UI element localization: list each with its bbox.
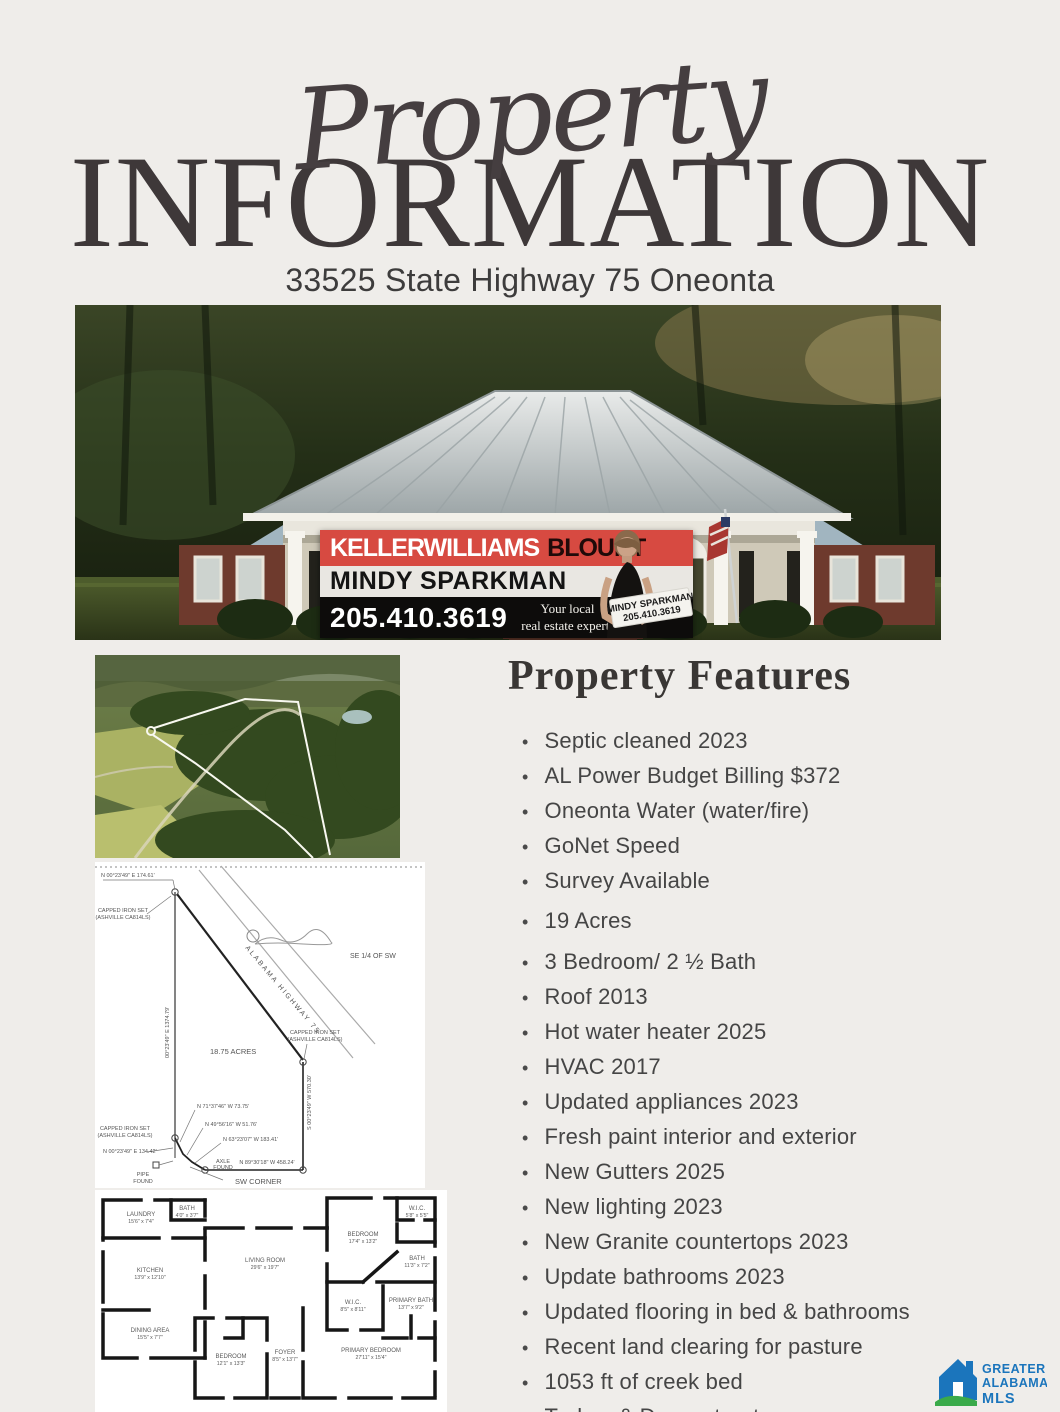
svg-text:(ASHVILLE CA814LS): (ASHVILLE CA814LS) [97, 1133, 152, 1139]
feature-item: Updated appliances 2023 [522, 1089, 968, 1115]
highway-label: ALABAMA HIGHWAY 75 [243, 945, 321, 1036]
feature-item: Updated flooring in bed & bathrooms [522, 1299, 968, 1325]
bearing-sw: N 00°23'49" E 134.42' [103, 1149, 157, 1155]
svg-text:29'6" x 19'7": 29'6" x 19'7" [251, 1265, 280, 1271]
svg-text:27'11" x 15'4": 27'11" x 15'4" [356, 1355, 387, 1361]
feature-item: GoNet Speed [522, 833, 968, 859]
svg-text:PRIMARY BEDROOM: PRIMARY BEDROOM [341, 1348, 401, 1354]
feature-item: 1053 ft of creek bed [522, 1369, 968, 1395]
svg-text:FOYER: FOYER [275, 1350, 296, 1356]
feature-item: HVAC 2017 [522, 1054, 968, 1080]
quarter-label: SE 1/4 OF SW [350, 953, 396, 960]
svg-text:DINING AREA: DINING AREA [131, 1328, 170, 1334]
feature-item: Update bathrooms 2023 [522, 1264, 968, 1290]
svg-text:CAPPED IRON SET: CAPPED IRON SET [290, 1030, 341, 1036]
svg-text:4'0" x 3'7": 4'0" x 3'7" [176, 1213, 199, 1219]
agent-banner: KELLERWILLIAMS BLOUNT MINDY SPARKMAN 205… [320, 530, 693, 638]
svg-text:BEDROOM: BEDROOM [215, 1354, 246, 1360]
svg-text:CAPPED IRON SET: CAPPED IRON SET [100, 1126, 151, 1132]
brand-name: KELLERWILLIAMS [330, 534, 539, 563]
svg-text:13'7" x 9'2": 13'7" x 9'2" [398, 1305, 424, 1311]
svg-text:(ASHVILLE CA814LS): (ASHVILLE CA814LS) [287, 1037, 342, 1043]
svg-text:KITCHEN: KITCHEN [137, 1268, 163, 1274]
svg-text:12'1" x 13'3": 12'1" x 13'3" [217, 1361, 246, 1367]
svg-text:11'3" x 7'2": 11'3" x 7'2" [404, 1263, 429, 1269]
svg-text:(ASHVILLE CA814LS): (ASHVILLE CA814LS) [95, 915, 150, 921]
pond [342, 710, 372, 724]
feature-item: Septic cleaned 2023 [522, 728, 968, 754]
bearing-2: N 49°56'16" W 51.76' [205, 1122, 257, 1128]
mls-logo: GREATER ALABAMA MLS [933, 1350, 1047, 1408]
agent-name: MINDY SPARKMAN [330, 567, 567, 596]
svg-text:17'4" x 13'2": 17'4" x 13'2" [349, 1239, 378, 1245]
svg-text:W.I.C.: W.I.C. [409, 1206, 426, 1212]
svg-text:ALABAMA: ALABAMA [982, 1376, 1047, 1390]
fascia [243, 513, 851, 521]
feature-item: Recent land clearing for pasture [522, 1334, 968, 1360]
svg-text:8'5" x 13'7": 8'5" x 13'7" [272, 1357, 298, 1363]
feature-item: AL Power Budget Billing $372 [522, 763, 968, 789]
svg-text:PIPE: PIPE [137, 1172, 150, 1178]
svg-text:8'5" x 8'11": 8'5" x 8'11" [340, 1307, 365, 1313]
property-flyer: Property INFORMATION 33525 State Highway… [0, 0, 1060, 1412]
svg-text:W.I.C.: W.I.C. [345, 1300, 362, 1306]
features-title: Property Features [508, 652, 968, 700]
aerial-photo [95, 655, 400, 858]
west-line-label: 00°23'49" E 1374.79' [165, 1007, 171, 1058]
east-line-label: S 00°23'49" W 570.30' [307, 1075, 313, 1130]
feature-item: Oneonta Water (water/fire) [522, 798, 968, 824]
feature-item: New Granite countertops 2023 [522, 1229, 968, 1255]
bearing-3: N 63°23'07" W 183.41' [223, 1137, 278, 1143]
bearing-nw: N 00°23'49" E 174.61' [101, 873, 155, 879]
acreage-label: 18.75 ACRES [210, 1047, 256, 1056]
feature-item: Survey Available [522, 868, 968, 894]
svg-text:BEDROOM: BEDROOM [347, 1232, 378, 1238]
svg-text:BATH: BATH [179, 1206, 195, 1212]
ne-boundary [177, 894, 303, 1060]
feature-item: Turkey & Deer retreat [522, 1404, 968, 1412]
svg-text:BATH: BATH [409, 1256, 425, 1262]
feature-item: New Gutters 2025 [522, 1159, 968, 1185]
feature-item: Fresh paint interior and exterior [522, 1124, 968, 1150]
features-list: Septic cleaned 2023 AL Power Budget Bill… [508, 728, 968, 1412]
svg-text:GREATER: GREATER [982, 1362, 1046, 1376]
bearing-south: N 89°30'18" W 458.24' [239, 1160, 294, 1166]
feature-item: Hot water heater 2025 [522, 1019, 968, 1045]
feature-item: Roof 2013 [522, 984, 968, 1010]
svg-text:MLS: MLS [982, 1391, 1016, 1407]
svg-text:13'9" x 12'10": 13'9" x 12'10" [134, 1275, 165, 1281]
walls [103, 1198, 435, 1398]
drive-squiggle [255, 930, 332, 945]
page-title: INFORMATION [0, 136, 1060, 268]
svg-text:LAUNDRY: LAUNDRY [127, 1212, 156, 1218]
svg-text:FOUND: FOUND [133, 1179, 153, 1185]
feature-item: 3 Bedroom/ 2 ½ Bath [522, 949, 968, 975]
survey-map: ALABAMA HIGHWAY 75 [95, 862, 425, 1188]
feature-item: 19 Acres [522, 908, 968, 934]
sw-corner-label: SW CORNER [235, 1177, 282, 1186]
corner-markers [153, 889, 306, 1173]
svg-text:PRIMARY BATH: PRIMARY BATH [389, 1298, 433, 1304]
highway-lines [199, 866, 375, 1058]
svg-text:15'5" x 7'7": 15'5" x 7'7" [137, 1335, 163, 1341]
svg-text:LIVING ROOM: LIVING ROOM [245, 1258, 285, 1264]
mls-wordmark: GREATER ALABAMA MLS [982, 1362, 1047, 1407]
svg-text:15'6" x 7'4": 15'6" x 7'4" [128, 1219, 154, 1225]
room-labels: BATH4'0" x 3'7" LAUNDRY15'6" x 7'4" KITC… [127, 1206, 433, 1367]
floor-plan: BATH4'0" x 3'7" LAUNDRY15'6" x 7'4" KITC… [95, 1190, 447, 1412]
bearing-1: N 71°37'46" W 73.75' [197, 1104, 249, 1110]
agent-portrait: MINDY SPARKMAN 205.410.3619 [589, 530, 693, 638]
house-photo: KELLERWILLIAMS BLOUNT MINDY SPARKMAN 205… [75, 305, 941, 640]
svg-text:5'8" x 5'5": 5'8" x 5'5" [406, 1213, 429, 1219]
agent-phone: 205.410.3619 [330, 602, 507, 634]
property-features-section: Property Features Septic cleaned 2023 AL… [508, 652, 968, 1412]
svg-text:CAPPED IRON SET: CAPPED IRON SET [98, 908, 149, 914]
feature-item: New lighting 2023 [522, 1194, 968, 1220]
svg-text:FOUND: FOUND [213, 1165, 233, 1171]
